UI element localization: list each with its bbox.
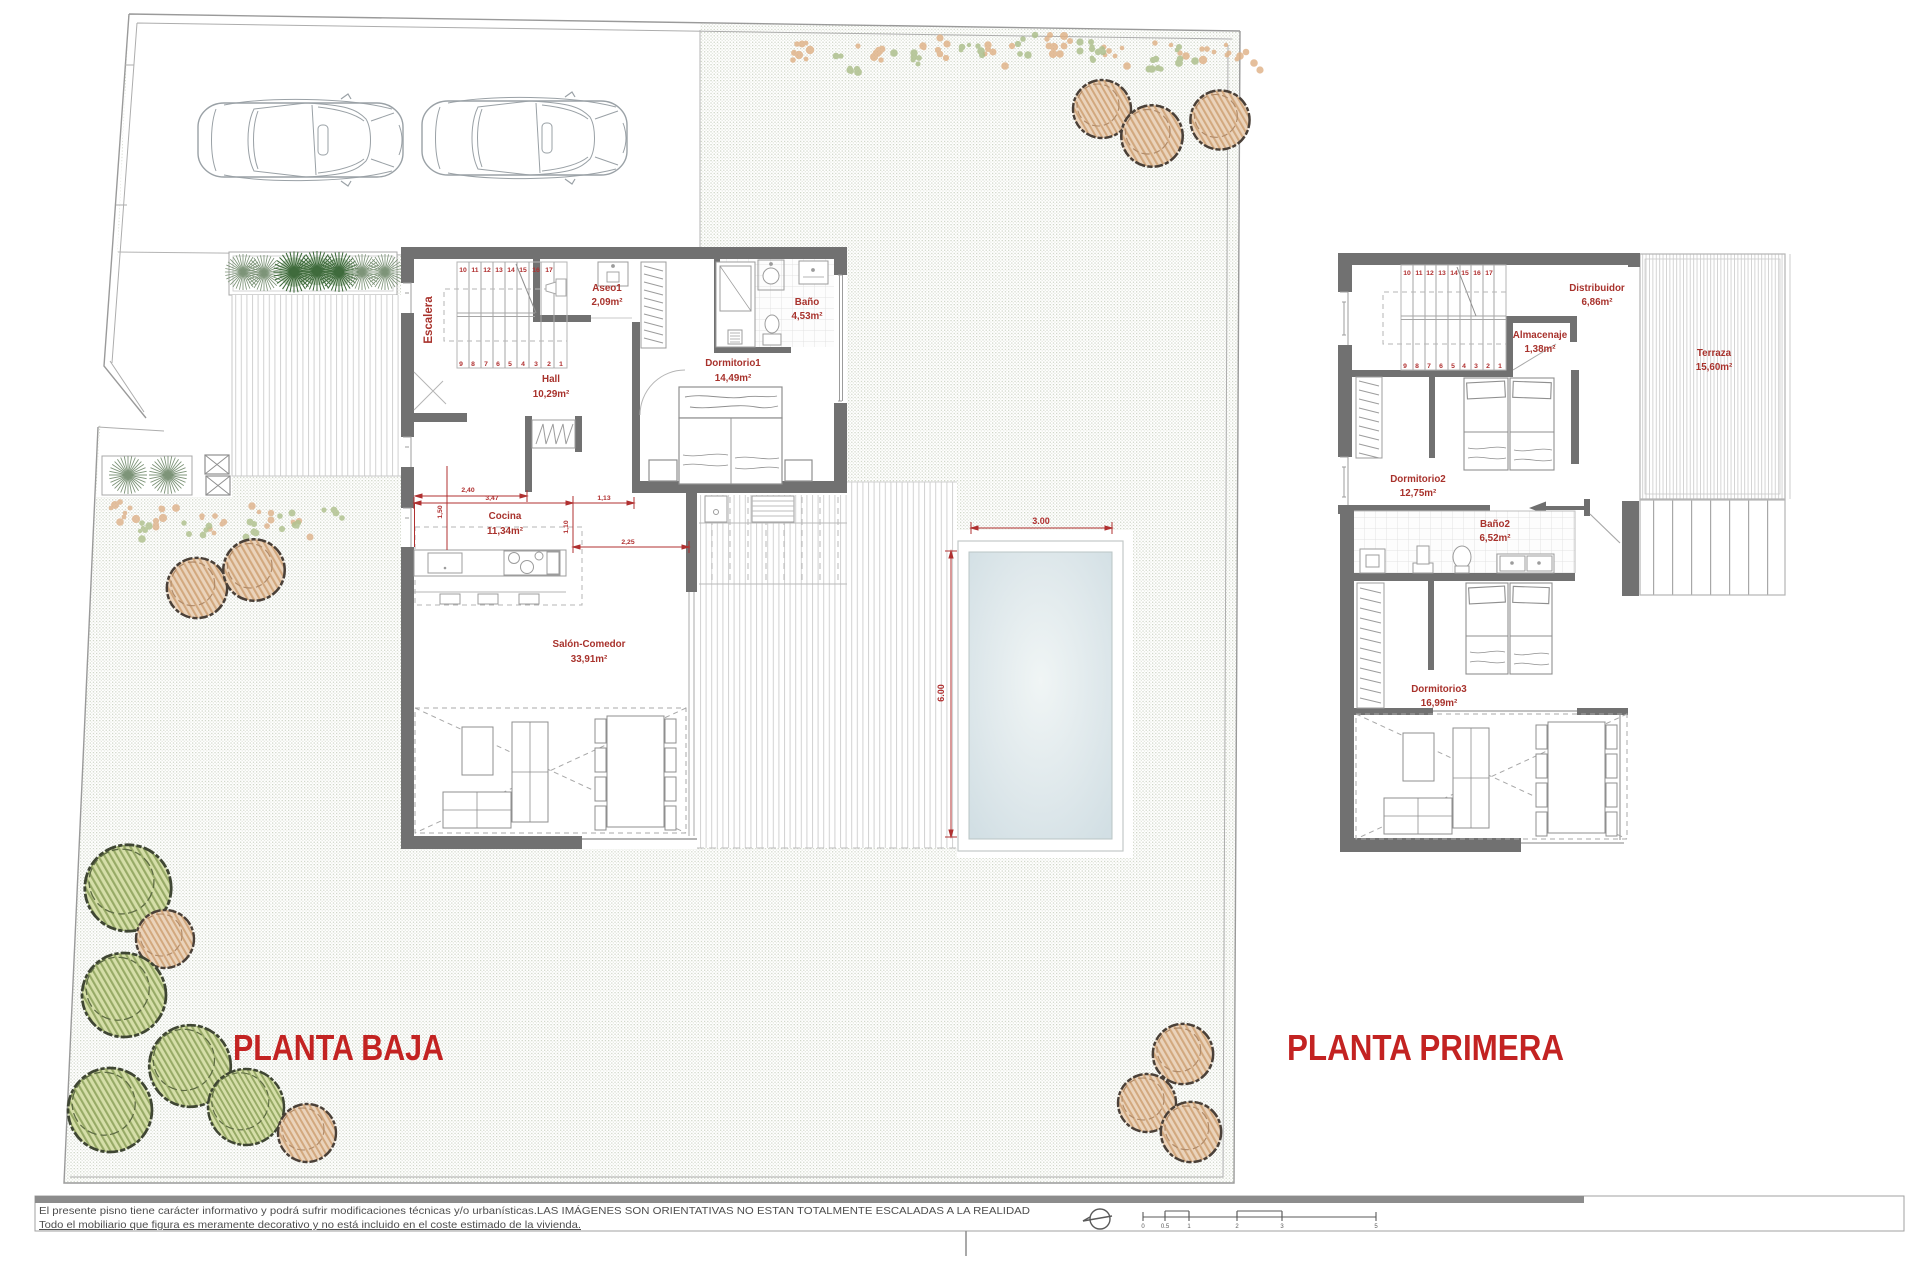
svg-text:15: 15: [519, 267, 527, 274]
svg-text:4: 4: [1462, 363, 1466, 370]
svg-text:1: 1: [1498, 363, 1502, 370]
svg-text:2,25: 2,25: [621, 539, 634, 546]
svg-text:33,91m²: 33,91m²: [571, 654, 608, 665]
svg-text:5: 5: [508, 361, 512, 368]
svg-text:2: 2: [1486, 363, 1490, 370]
svg-text:1,13: 1,13: [597, 495, 610, 502]
svg-text:3.00: 3.00: [1032, 516, 1050, 526]
svg-text:3,47: 3,47: [485, 495, 498, 502]
svg-text:16: 16: [532, 267, 540, 274]
svg-text:16,99m²: 16,99m²: [1421, 698, 1458, 709]
svg-text:11,34m²: 11,34m²: [487, 526, 524, 537]
svg-text:13: 13: [495, 267, 503, 274]
svg-text:5: 5: [1451, 363, 1455, 370]
svg-text:6,86m²: 6,86m²: [1581, 297, 1613, 308]
svg-text:Salón-Comedor: Salón-Comedor: [553, 639, 626, 650]
svg-text:Almacenaje: Almacenaje: [1513, 330, 1568, 341]
svg-text:Hall: Hall: [542, 374, 560, 385]
svg-text:11: 11: [471, 267, 478, 274]
svg-text:Baño: Baño: [795, 297, 820, 308]
svg-text:11: 11: [1415, 270, 1422, 277]
svg-text:12: 12: [1426, 270, 1434, 277]
svg-text:Terraza: Terraza: [1697, 348, 1732, 359]
svg-text:9: 9: [459, 361, 463, 368]
svg-text:7: 7: [1427, 363, 1431, 370]
svg-text:4: 4: [521, 361, 525, 368]
svg-text:PLANTA PRIMERA: PLANTA PRIMERA: [1287, 1027, 1564, 1068]
svg-text:17: 17: [1485, 270, 1493, 277]
svg-text:14,49m²: 14,49m²: [715, 373, 752, 384]
svg-text:1,10: 1,10: [563, 520, 570, 533]
svg-text:3: 3: [534, 361, 538, 368]
svg-text:4,53m²: 4,53m²: [791, 311, 823, 322]
svg-text:0.5: 0.5: [1161, 1224, 1170, 1230]
svg-text:14: 14: [1450, 270, 1458, 277]
svg-text:Cocina: Cocina: [489, 511, 522, 522]
svg-text:Aseo1: Aseo1: [592, 283, 622, 294]
svg-text:Baño2: Baño2: [1480, 519, 1510, 530]
svg-text:15,60m²: 15,60m²: [1696, 362, 1733, 373]
svg-text:6,52m²: 6,52m²: [1479, 533, 1511, 544]
svg-text:10,29m²: 10,29m²: [533, 389, 570, 400]
svg-text:7: 7: [484, 361, 488, 368]
svg-text:6: 6: [496, 361, 500, 368]
svg-text:6.00: 6.00: [936, 684, 946, 702]
svg-text:8: 8: [1415, 363, 1419, 370]
svg-text:Dormitorio1: Dormitorio1: [705, 358, 761, 369]
svg-text:Escalera: Escalera: [423, 296, 435, 344]
svg-text:16: 16: [1473, 270, 1481, 277]
svg-text:PLANTA BAJA: PLANTA BAJA: [233, 1027, 444, 1068]
svg-text:Dormitorio2: Dormitorio2: [1390, 474, 1446, 485]
svg-text:2: 2: [547, 361, 551, 368]
svg-text:9: 9: [1403, 363, 1407, 370]
svg-text:El presente pisno tiene carác: El presente pisno tiene carácter informa…: [39, 1204, 1030, 1217]
svg-text:3: 3: [1474, 363, 1478, 370]
svg-text:6: 6: [1439, 363, 1443, 370]
svg-text:1,38m²: 1,38m²: [1524, 344, 1556, 355]
svg-text:14: 14: [507, 267, 515, 274]
svg-text:17: 17: [545, 267, 553, 274]
svg-text:15: 15: [1461, 270, 1469, 277]
svg-text:1: 1: [559, 361, 563, 368]
svg-text:1,50: 1,50: [437, 505, 444, 518]
svg-text:12,75m²: 12,75m²: [1400, 488, 1437, 499]
svg-text:Dormitorio3: Dormitorio3: [1411, 684, 1467, 695]
svg-text:12: 12: [483, 267, 491, 274]
svg-text:10: 10: [1403, 270, 1411, 277]
svg-text:Distribuidor: Distribuidor: [1569, 283, 1625, 294]
svg-text:10: 10: [459, 267, 467, 274]
svg-text:8: 8: [471, 361, 475, 368]
svg-text:13: 13: [1438, 270, 1446, 277]
svg-text:Todo el mobiliario que figura: Todo el mobiliario que figura es meramen…: [39, 1219, 581, 1231]
svg-text:2,40: 2,40: [461, 487, 474, 494]
svg-text:2,09m²: 2,09m²: [591, 297, 623, 308]
